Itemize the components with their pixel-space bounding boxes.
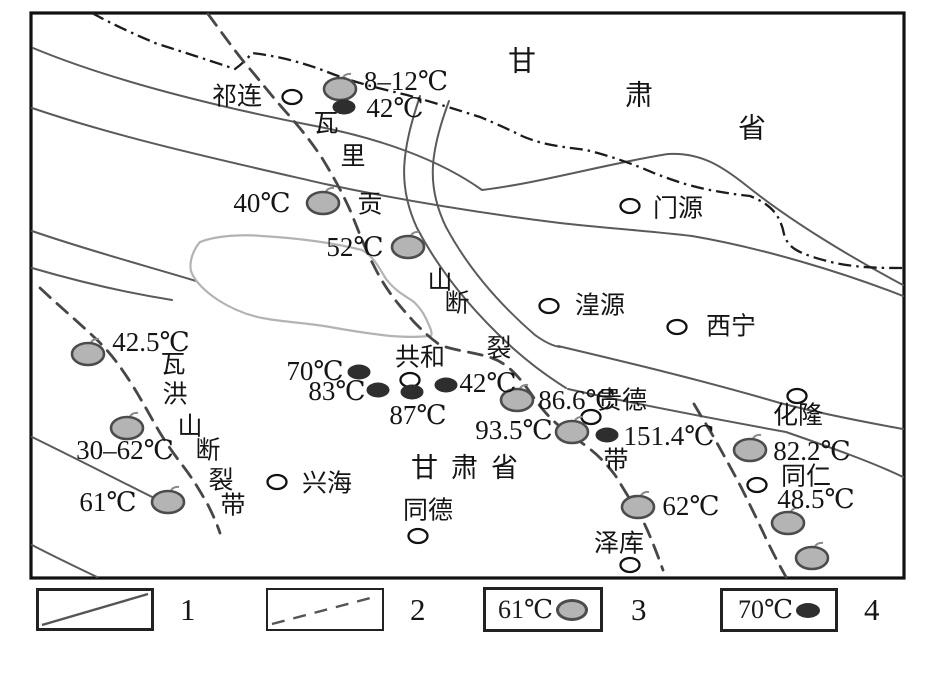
dashed-line-symbol xyxy=(269,591,381,628)
hot-spring-marker-2 xyxy=(392,236,424,258)
province-boundary-line xyxy=(92,13,903,268)
hot-spring-marker-9 xyxy=(622,496,654,518)
spring-temp-label-4: 30–62℃ xyxy=(76,435,174,465)
well-temp-label-4: 42℃ xyxy=(459,368,516,398)
legend-label-2: 2 xyxy=(410,592,426,628)
hot-spring-marker-11 xyxy=(796,547,828,569)
city-label-泽库: 泽库 xyxy=(594,530,644,558)
city-circle-化隆 xyxy=(788,389,807,403)
city-circle-兴海 xyxy=(268,475,287,489)
mountain-line-west-3 xyxy=(32,231,196,281)
city-circle-同仁 xyxy=(748,478,767,492)
city-label-湟源: 湟源 xyxy=(575,292,625,320)
geothermal-map-figure: 祁连门源湟源西宁共和贵德化隆兴海同德同仁泽库8–12℃40℃52℃42.5℃30… xyxy=(0,0,940,684)
spring-temp-label-5: 61℃ xyxy=(79,487,136,517)
city-circle-湟源 xyxy=(540,299,559,313)
fault-name-0-char-5: 裂 xyxy=(486,335,511,363)
region-label-mid: 甘肃省 xyxy=(411,453,531,483)
legend-box-dashed-line xyxy=(266,588,384,631)
spring-temp-label-9: 62℃ xyxy=(662,491,719,521)
well-temp-label-0: 42℃ xyxy=(366,93,423,123)
city-circle-门源 xyxy=(621,199,640,213)
fault-name-0-char-2: 贡 xyxy=(357,192,382,219)
hot-spring-marker-8 xyxy=(734,439,766,461)
fault-name-0-char-1: 里 xyxy=(340,144,365,171)
fault-name-1-char-5: 带 xyxy=(220,493,245,520)
city-label-共和: 共和 xyxy=(395,344,445,372)
geothermal-well-symbol xyxy=(796,603,820,618)
city-circle-泽库 xyxy=(621,558,640,572)
legend-box-geothermal-well: 70℃ xyxy=(720,588,838,632)
spring-temp-label-10: 48.5℃ xyxy=(777,484,854,514)
city-label-化隆: 化隆 xyxy=(773,402,823,430)
geothermal-well-marker-4 xyxy=(435,378,458,393)
fault-name-0-char-6: 带 xyxy=(603,448,628,475)
spring-temp-label-7: 93.5℃ xyxy=(475,415,552,445)
mountain-line-west-4 xyxy=(32,268,172,300)
city-circle-祁连 xyxy=(283,90,302,104)
legend-item-4: 70℃ 4 xyxy=(720,588,880,632)
fault-name-1-char-2: 山 xyxy=(177,413,202,441)
hot-spring-marker-1 xyxy=(307,192,339,214)
legend-label-4: 4 xyxy=(864,592,880,628)
well-temp-label-2: 83℃ xyxy=(308,376,365,406)
fault-name-0-char-4: 断 xyxy=(444,290,469,318)
fault-name-1-char-3: 断 xyxy=(195,437,220,465)
map-labels: 祁连门源湟源西宁共和贵德化隆兴海同德同仁泽库8–12℃40℃52℃42.5℃30… xyxy=(76,46,855,558)
geothermal-well-marker-3 xyxy=(401,385,424,400)
geothermal-well-marker-5 xyxy=(596,428,619,443)
mountain-line-north-1 xyxy=(33,48,903,285)
hot-spring-marker-5 xyxy=(152,491,184,513)
geothermal-well-marker-2 xyxy=(367,383,390,398)
city-circle-西宁 xyxy=(668,320,687,334)
legend-label-3: 3 xyxy=(631,592,647,628)
mountain-line-southwest-6 xyxy=(32,545,97,577)
fault-name-1-char-0: 瓦 xyxy=(160,352,185,379)
legend-box-solid-line xyxy=(36,588,154,631)
province-char-2: 省 xyxy=(738,113,766,145)
fault-name-0-char-0: 瓦 xyxy=(313,111,338,138)
legend-item-3: 61℃ 3 xyxy=(483,587,647,632)
spring-temp-label-1: 40℃ xyxy=(233,188,290,218)
fault-name-1-char-1: 洪 xyxy=(162,381,187,409)
spring-temp-label-2: 52℃ xyxy=(326,232,383,262)
legend-box-hot-spring: 61℃ xyxy=(483,587,603,632)
mountain-line-north-2 xyxy=(32,108,903,296)
hot-spring-marker-10 xyxy=(772,512,804,534)
solid-line-symbol xyxy=(39,591,151,628)
spring-temp-label-8: 82.2℃ xyxy=(773,436,850,466)
legend-well-temp: 70℃ xyxy=(738,595,793,625)
city-label-西宁: 西宁 xyxy=(706,313,756,341)
fault-name-1-char-4: 裂 xyxy=(208,467,233,495)
spring-temp-label-6: 86.6℃ xyxy=(538,385,615,415)
well-temp-label-3: 87℃ xyxy=(389,400,446,430)
city-label-祁连: 祁连 xyxy=(212,83,262,111)
legend-label-1: 1 xyxy=(180,592,196,628)
well-temp-label-5: 151.4℃ xyxy=(624,421,715,451)
province-char-1: 肃 xyxy=(625,80,653,112)
hot-spring-symbol xyxy=(556,599,588,621)
legend-item-1: 1 xyxy=(36,588,196,631)
city-circle-同德 xyxy=(409,529,428,543)
hot-spring-marker-3 xyxy=(72,343,104,365)
map-canvas: 祁连门源湟源西宁共和贵德化隆兴海同德同仁泽库8–12℃40℃52℃42.5℃30… xyxy=(0,0,940,684)
province-char-0: 甘 xyxy=(508,46,536,78)
legend-item-2: 2 xyxy=(266,588,426,631)
hot-spring-marker-7 xyxy=(556,421,588,443)
legend-spring-temp: 61℃ xyxy=(498,595,553,625)
spring-temp-label-0: 8–12℃ xyxy=(364,66,448,96)
hot-spring-marker-0 xyxy=(324,78,356,100)
city-label-兴海: 兴海 xyxy=(302,470,352,498)
city-label-门源: 门源 xyxy=(653,195,703,223)
city-label-同德: 同德 xyxy=(403,497,453,525)
